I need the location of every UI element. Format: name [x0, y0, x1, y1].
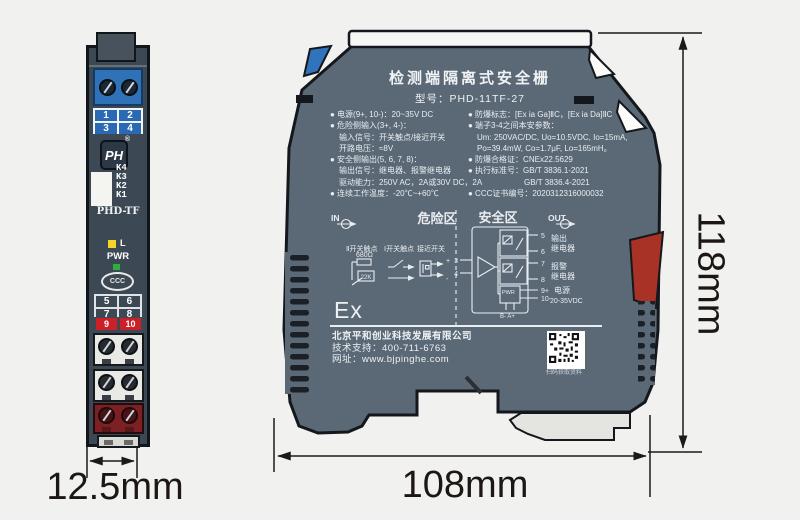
marking-label: [91, 172, 112, 206]
screw-terminal: [98, 374, 115, 391]
qr-caption: 扫码获取资料: [534, 367, 594, 376]
screw-terminal: [121, 338, 138, 355]
zone-safe-label: 安全区: [478, 210, 517, 225]
terminal-4: 4: [454, 271, 458, 278]
front-terminal-grid-top: 1 2 3 4: [93, 108, 143, 134]
red-clip: [630, 232, 663, 308]
front-model-label: PHD-TF: [89, 206, 147, 217]
footer-divider: [330, 325, 602, 327]
ccc-mark: CCC: [101, 272, 134, 291]
terminal-number: 3: [95, 123, 117, 134]
terminal-5: 5: [541, 233, 545, 240]
terminal-6: 6: [541, 249, 545, 256]
alarm-relay-label-1: 报警: [551, 261, 567, 271]
spec-line: ● 防爆标志：[Ex ia Ga]ⅡC，[Ex ia Da]ⅡC: [468, 109, 628, 120]
brand-logo-text: PH: [105, 148, 123, 163]
terminal-number: 4: [119, 123, 141, 134]
out-relay-label-1: 输出: [551, 233, 567, 243]
pwr-label: PWR: [89, 251, 147, 262]
terminal-block-1: [93, 333, 144, 366]
ribs-left: [285, 252, 309, 394]
wire-slot: [124, 440, 133, 445]
zone-danger-label: 危险区: [417, 211, 456, 226]
spec-line: ● 端子3-4之间本安参数：: [468, 120, 628, 131]
module-dimension-drawing: IN OUT 危险区 安全区 Ⅱ开关触点 680Ω 22K Ⅰ开关触点 接近开关…: [0, 0, 800, 520]
spec-line: 输入信号：开关触点/接近开关: [330, 132, 482, 143]
dimension-front-width: 12.5mm: [40, 466, 190, 509]
terminal-8: 8: [541, 277, 545, 284]
terminal-number: 1: [95, 110, 117, 121]
signal-led: [108, 240, 116, 248]
specs-left-column: ● 电源(9+, 10-)：20~35V DC ● 危险侧输入(3+, 4-)：…: [330, 109, 482, 199]
spec-line: ● 危险侧输入(3+, 4-)：: [330, 120, 482, 131]
specs-right-column: ● 防爆标志：[Ex ia Ga]ⅡC，[Ex ia Da]ⅡC ● 端子3-4…: [468, 109, 628, 199]
front-top-terminal-block: [93, 68, 143, 106]
out-label: OUT: [548, 213, 567, 223]
wire-slot: [102, 427, 111, 432]
resistor-22k-label: 22K: [361, 275, 372, 281]
screw-terminal: [121, 79, 138, 96]
wire-slot: [125, 359, 134, 364]
front-view: 1 2 3 4 PH ® K4 K3 K2 K1 PHD-TF L PWR CC…: [86, 45, 150, 447]
company-website: 网址：www.bjpinghe.com: [332, 354, 472, 366]
prox-label: 接近开关: [417, 244, 445, 253]
k-label: K1: [116, 191, 127, 200]
terminal-number: 6: [119, 296, 140, 307]
qr-code: [547, 331, 585, 369]
k-terminal-labels: K4 K3 K2 K1: [116, 164, 127, 200]
resistor-680-label: 680Ω: [356, 252, 373, 259]
pwr-box-label: PWR: [502, 290, 515, 296]
spec-line: ● 连续工作温度：-20℃~+60℃: [330, 188, 482, 199]
front-bottom-cap: [97, 435, 140, 448]
dimension-side-height: 118mm: [689, 209, 732, 339]
terminal-3: 3: [454, 258, 458, 265]
wire-slot: [102, 395, 111, 400]
prox-plus: +: [446, 258, 450, 265]
power-terminal-block: [93, 403, 144, 434]
power-label-2: 20-35VDC: [550, 298, 583, 305]
spec-line: ● 安全侧输出(5, 6, 7, 8)：: [330, 154, 482, 165]
ba-label: B- A+: [500, 314, 515, 320]
product-title: 检测端隔离式安全栅: [300, 67, 640, 88]
led-l-label: L: [120, 238, 126, 248]
spec-line: ● 电源(9+, 10-)：20~35V DC: [330, 109, 482, 120]
terminal-9: 9+: [541, 288, 549, 295]
support-phone: 技术支持：400-711-6763: [332, 343, 472, 355]
power-terminal-numbers: 9 10: [96, 318, 141, 330]
wire-slot: [125, 395, 134, 400]
ribs-right: [638, 301, 655, 385]
screw-terminal: [98, 407, 115, 424]
terminal-block-2: [93, 369, 144, 402]
top-cap: [349, 31, 591, 47]
alarm-relay-label-2: 继电器: [551, 271, 575, 281]
in-label: IN: [331, 213, 340, 223]
spec-line: Po=39.4mW, Co=1.7μF, Lo=165mH。: [468, 143, 628, 154]
spec-line: 输出信号：继电器、报警继电器: [330, 165, 482, 176]
spec-line: Um: 250VAC/DC, Uo=10.5VDC, Io=15mA,: [468, 132, 628, 143]
spec-line: GB/T 3836.4-2021: [468, 177, 628, 188]
front-terminal-grid-mid: 5 6 7 8: [94, 294, 142, 317]
wire-slot: [102, 359, 111, 364]
ex-marking: Ex: [334, 297, 363, 324]
company-info: 北京平和创业科技发展有限公司 技术支持：400-711-6763 网址：www.…: [332, 331, 472, 366]
spec-line: 驱动能力：250V AC，2A或30V DC，2A: [330, 177, 482, 188]
screw-terminal: [121, 407, 138, 424]
din-latch: [510, 413, 630, 440]
screw-terminal: [121, 374, 138, 391]
front-divider: [89, 65, 147, 67]
wire-slot: [104, 440, 113, 445]
product-model: 型号：PHD-11TF-27: [300, 91, 640, 106]
terminal-number: 5: [96, 296, 117, 307]
screw-terminal: [98, 338, 115, 355]
power-led: [113, 264, 120, 270]
registered-mark: ®: [125, 136, 130, 143]
terminal-7: 7: [541, 261, 545, 268]
spec-line: 开路电压：≈8V: [330, 143, 482, 154]
spec-line: ● 执行标准号：GB/T 3836.1-2021: [468, 165, 628, 176]
terminal-number: 2: [119, 110, 141, 121]
out-relay-label-2: 继电器: [551, 243, 575, 253]
company-name: 北京平和创业科技发展有限公司: [332, 331, 472, 343]
terminal-number: 10: [120, 318, 141, 330]
front-top-cap: [96, 32, 136, 62]
spec-line: ● 防爆合格证：CNEx22.5629: [468, 154, 628, 165]
terminal-number: 9: [96, 318, 117, 330]
spec-line: ● CCC证书编号：2020312316000032: [468, 188, 628, 199]
contact1-label: Ⅰ开关触点: [384, 244, 414, 253]
wire-slot: [125, 427, 134, 432]
screw-terminal: [99, 79, 116, 96]
power-label-1: 电源: [554, 285, 570, 295]
dimension-side-width: 108mm: [380, 464, 550, 507]
